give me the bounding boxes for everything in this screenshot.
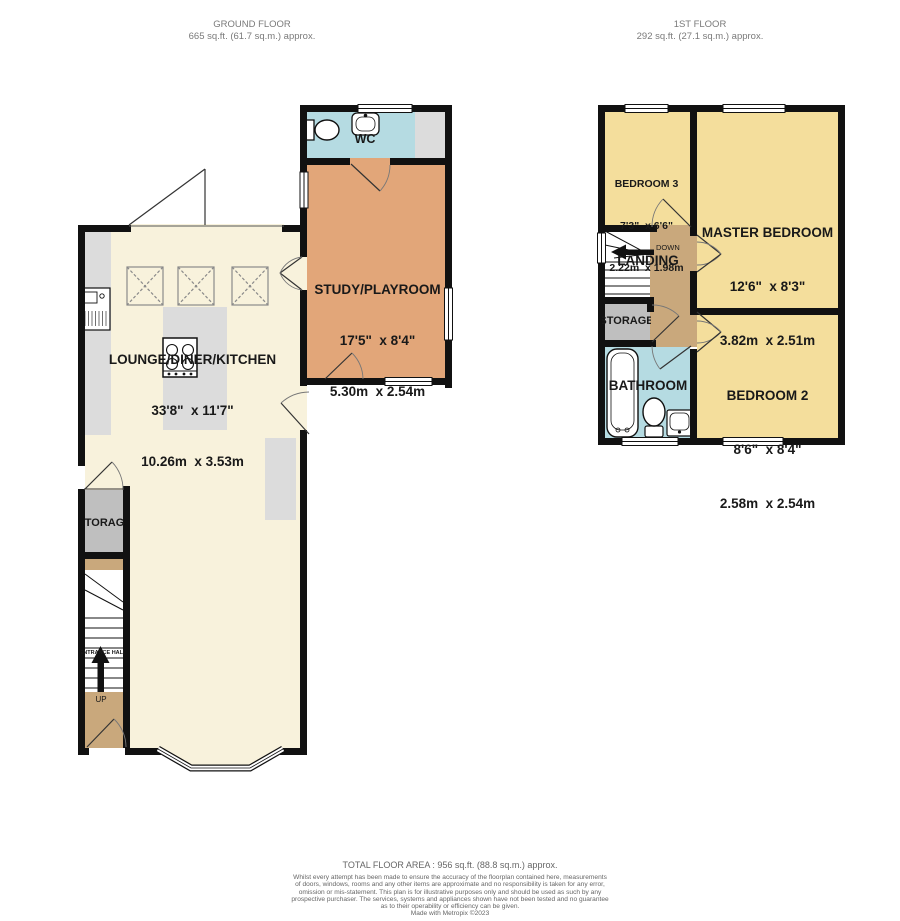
lounge-imperial: 33'8" x 11'7": [85, 402, 300, 419]
lounge-label: LOUNGE/DINER/KITCHEN 33'8" x 11'7" 10.26…: [85, 317, 300, 487]
first-floor-title: 1ST FLOOR: [550, 19, 850, 31]
folding-door-swing: [129, 169, 284, 226]
toilet-icon-wc: [306, 120, 339, 140]
disclaimer-line: Whilst every attempt has been made to en…: [130, 874, 770, 881]
study-metric: 5.30m x 2.54m: [307, 383, 448, 400]
bedroom3-name: BEDROOM 3: [603, 177, 690, 191]
ground-floor-header: GROUND FLOOR 665 sq.ft. (61.7 sq.m.) app…: [102, 19, 402, 43]
bathroom-label: BATHROOM: [599, 377, 697, 394]
landing-label: LANDING: [598, 252, 698, 269]
master-label: MASTER BEDROOM 12'6" x 8'3" 3.82m x 2.51…: [695, 188, 840, 368]
bedroom2-label: BEDROOM 2 8'6" x 8'4" 2.58m x 2.54m: [695, 351, 840, 531]
study-name: STUDY/PLAYROOM: [307, 281, 448, 298]
bedroom2-name: BEDROOM 2: [695, 387, 840, 405]
sink-icon-bathroom: [667, 410, 692, 436]
storage-ground-label: STORAGE: [84, 515, 125, 531]
front-door-opening: [89, 748, 125, 755]
study-label: STUDY/PLAYROOM 17'5" x 8'4" 5.30m x 2.54…: [307, 247, 448, 417]
first-floor-header: 1ST FLOOR 292 sq.ft. (27.1 sq.m.) approx…: [550, 19, 850, 43]
lounge-name: LOUNGE/DINER/KITCHEN: [85, 351, 300, 368]
lounge-metric: 10.26m x 3.53m: [85, 453, 300, 470]
disclaimer: Whilst every attempt has been made to en…: [130, 874, 770, 918]
disclaimer-line: prospective purchaser. The services, sys…: [130, 896, 770, 903]
wc-gray-unit: [415, 112, 445, 158]
wc-label: WC: [341, 131, 389, 148]
entrance-hall-label: ENTRANCE HALL: [81, 648, 125, 657]
first-floor-area: 292 sq.ft. (27.1 sq.m.) approx.: [550, 31, 850, 43]
master-imperial: 12'6" x 8'3": [695, 278, 840, 296]
credit-line: Made with Metropix ©2023: [130, 910, 770, 917]
study-door-patch: [300, 257, 307, 290]
disclaimer-line: omission or mis-statement. This plan is …: [130, 889, 770, 896]
master-metric: 3.82m x 2.51m: [695, 332, 840, 350]
ground-floor-area: 665 sq.ft. (61.7 sq.m.) approx.: [102, 31, 402, 43]
down-label: DOWN: [656, 243, 680, 252]
up-label: UP: [84, 695, 118, 704]
bedroom2-imperial: 8'6" x 8'4": [695, 441, 840, 459]
total-floor-area: TOTAL FLOOR AREA : 956 sq.ft. (88.8 sq.m…: [130, 860, 770, 870]
ground-floor-title: GROUND FLOOR: [102, 19, 402, 31]
master-name: MASTER BEDROOM: [695, 224, 840, 242]
floorplan-page: GROUND FLOOR 665 sq.ft. (61.7 sq.m.) app…: [0, 0, 900, 921]
bedroom3-imperial: 7'3" x 6'6": [603, 219, 690, 233]
bedroom2-metric: 2.58m x 2.54m: [695, 495, 840, 513]
study-imperial: 17'5" x 8'4": [307, 332, 448, 349]
storage-first-label: STORAGE: [602, 313, 651, 329]
disclaimer-line: of doors, windows, rooms and any other i…: [130, 881, 770, 888]
toilet-icon-bathroom: [643, 398, 665, 437]
